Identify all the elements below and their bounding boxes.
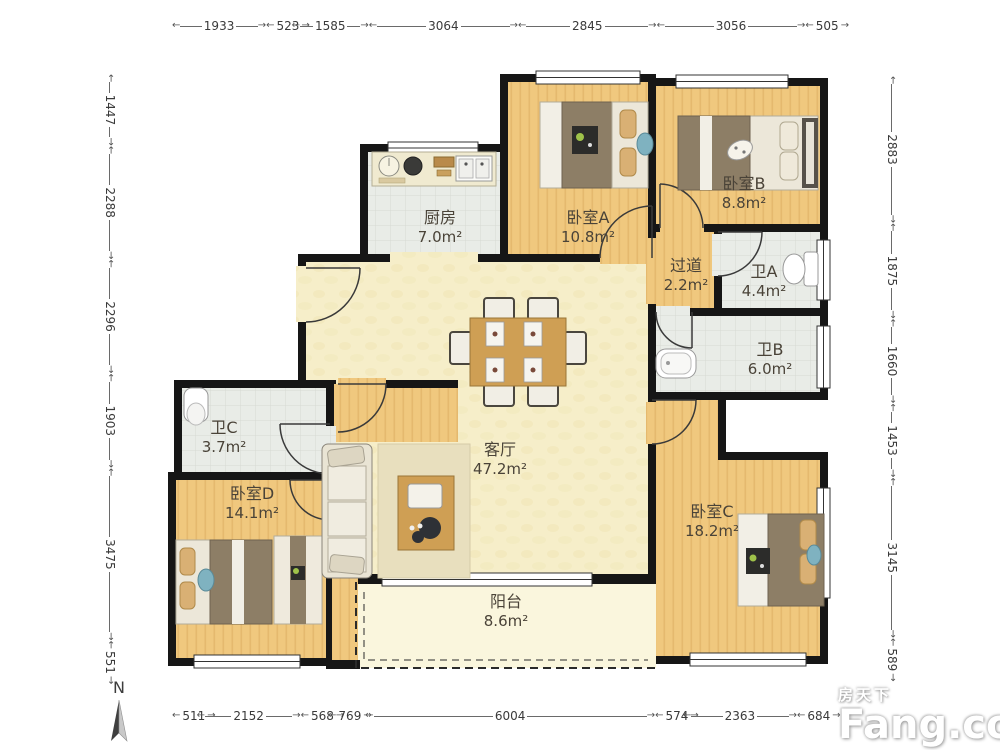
room-area: 7.0m² xyxy=(418,228,462,246)
bedroomC-bed xyxy=(738,514,824,606)
room-name: 厨房 xyxy=(418,208,462,228)
room-label-balcony: 阳台 8.6m² xyxy=(484,592,528,630)
room-area: 18.2m² xyxy=(685,522,739,540)
room-name: 过道 xyxy=(664,256,708,276)
wall-strip-bottom xyxy=(326,660,360,669)
room-area: 2.2m² xyxy=(664,276,708,294)
corridor-floor xyxy=(334,384,458,442)
bathA-toilet xyxy=(783,252,818,286)
room-label-bathB: 卫B 6.0m² xyxy=(748,340,792,378)
window-bedroomA xyxy=(536,71,640,84)
room-name: 卧室B xyxy=(722,174,766,194)
room-area: 10.8m² xyxy=(561,228,615,246)
room-name: 卫B xyxy=(748,340,792,360)
room-area: 14.1m² xyxy=(225,504,279,522)
bedroomA-bed xyxy=(540,102,653,188)
side-strip-floor xyxy=(332,578,358,666)
room-area: 8.6m² xyxy=(484,612,528,630)
sofa xyxy=(322,444,372,578)
dim-line-bottom: ←511→ ←2152→ ←568→ ←769→ ←6004→ ←574→ ←2… xyxy=(172,708,830,724)
window-bathB xyxy=(817,326,830,388)
room-label-bathA: 卫A 4.4m² xyxy=(742,262,786,300)
room-area: 3.7m² xyxy=(202,438,246,456)
window-bathA xyxy=(817,240,830,300)
room-name: 卫A xyxy=(742,262,786,282)
room-area: 6.0m² xyxy=(748,360,792,378)
room-name: 卧室A xyxy=(561,208,615,228)
room-label-bedroomC: 卧室C 18.2m² xyxy=(685,502,739,540)
window-bedroomB xyxy=(676,75,788,88)
room-label-bedroomA: 卧室A 10.8m² xyxy=(561,208,615,246)
dim-line-top: ←1933→ ←523→ ←1585→ ←3064→ ←2845→ ←3056→… xyxy=(172,18,830,34)
room-label-bedroomB: 卧室B 8.8m² xyxy=(722,174,766,212)
room-area: 4.4m² xyxy=(742,282,786,300)
window-bedroomC-bottom xyxy=(690,653,806,666)
room-area: 47.2m² xyxy=(473,460,527,478)
room-name: 卫C xyxy=(202,418,246,438)
room-label-kitchen: 厨房 7.0m² xyxy=(418,208,462,246)
watermark-en: Fang.com xyxy=(838,705,1000,745)
north-label: N xyxy=(102,678,136,697)
window-bedroomD xyxy=(194,655,300,668)
dim-line-right: ←2883→ ←1875→ ←1660→ ←1453→ ←3145→ ←589→ xyxy=(884,76,900,668)
floorplan-drawing xyxy=(0,0,1000,750)
room-name: 客厅 xyxy=(473,440,527,460)
compass-arrow-icon xyxy=(104,698,134,744)
room-name: 卧室D xyxy=(225,484,279,504)
room-label-hallway: 过道 2.2m² xyxy=(664,256,708,294)
room-name: 阳台 xyxy=(484,592,528,612)
floorplan-page: 厨房 7.0m² 卧室A 10.8m² 卧室B 8.8m² 过道 2.2m² 卫… xyxy=(0,0,1000,750)
north-indicator: N xyxy=(102,678,136,748)
kitchen-counter xyxy=(372,152,496,186)
bedroomD-bed xyxy=(176,536,322,624)
room-name: 卧室C xyxy=(685,502,739,522)
room-area: 8.8m² xyxy=(722,194,766,212)
room-label-bathC: 卫C 3.7m² xyxy=(202,418,246,456)
room-label-bedroomD: 卧室D 14.1m² xyxy=(225,484,279,522)
coffee-table xyxy=(398,476,454,550)
room-label-living: 客厅 47.2m² xyxy=(473,440,527,478)
watermark-fang: 房天下 Fang.com xyxy=(838,684,1000,745)
bathB-bathtub xyxy=(656,349,696,378)
dim-line-left: ←1447→ ←2288→ ←2296→ ←1903→ ←3475→ ←551→ xyxy=(102,74,118,668)
wall-corridor xyxy=(386,380,458,388)
